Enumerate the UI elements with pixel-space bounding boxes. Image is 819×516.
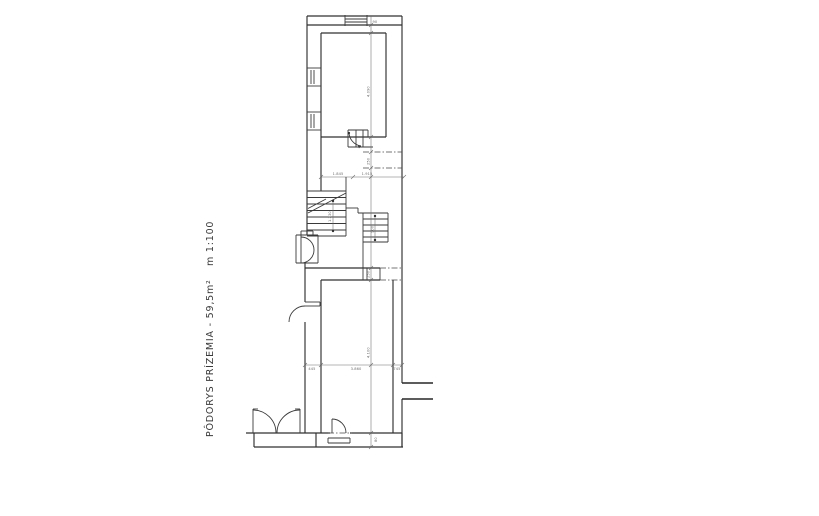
door-top-room	[348, 130, 373, 148]
stairs-left-flight	[307, 177, 346, 236]
window-top-wall	[345, 15, 367, 26]
door-lower-left	[289, 302, 320, 322]
screenshot-canvas: PÔDORYS PRÍZEMIA - 59,5m² m 1:100	[0, 0, 819, 516]
dim-hall-right: 1.915	[362, 172, 373, 176]
outer-walls	[246, 16, 403, 447]
stairs-landing-walls	[346, 208, 388, 268]
right-wall-extension	[402, 383, 433, 399]
window-left-wall-1	[307, 68, 321, 86]
dim-stair-left: 1.230	[328, 211, 332, 222]
dim-bottom-right: 745	[393, 367, 400, 371]
dim-hall-left: 1.845	[333, 172, 344, 176]
floor-plan-drawing: PÔDORYS PRÍZEMIA - 59,5m² m 1:100	[0, 0, 819, 516]
dim-top-window: 90	[373, 20, 378, 24]
plan-scale: m 1:100	[205, 221, 216, 266]
dim-bottom-left: 445	[308, 367, 315, 371]
dim-room-top-height: 4.090	[367, 86, 371, 97]
dim-bottom-door: 80	[374, 437, 378, 442]
stairs-left-dimension	[332, 200, 334, 232]
window-left-wall-2	[307, 112, 321, 130]
dim-bottom-mid: 3.860	[351, 367, 362, 371]
entrance-double-door	[253, 409, 300, 433]
dashed-opening-lower	[380, 268, 402, 280]
lower-room-walls	[321, 280, 393, 433]
plan-title: PÔDORYS PRÍZEMIA - 59,5m²	[204, 279, 216, 437]
dim-mid-gap: 250	[367, 270, 371, 278]
door-bottom	[328, 419, 352, 443]
dim-door-gap: 250	[367, 157, 371, 165]
dim-room-bottom-height: 4.100	[367, 347, 371, 358]
top-room-walls	[321, 33, 386, 191]
dim-stair-right: 900	[371, 225, 375, 233]
stairs-right-flight	[363, 219, 388, 242]
